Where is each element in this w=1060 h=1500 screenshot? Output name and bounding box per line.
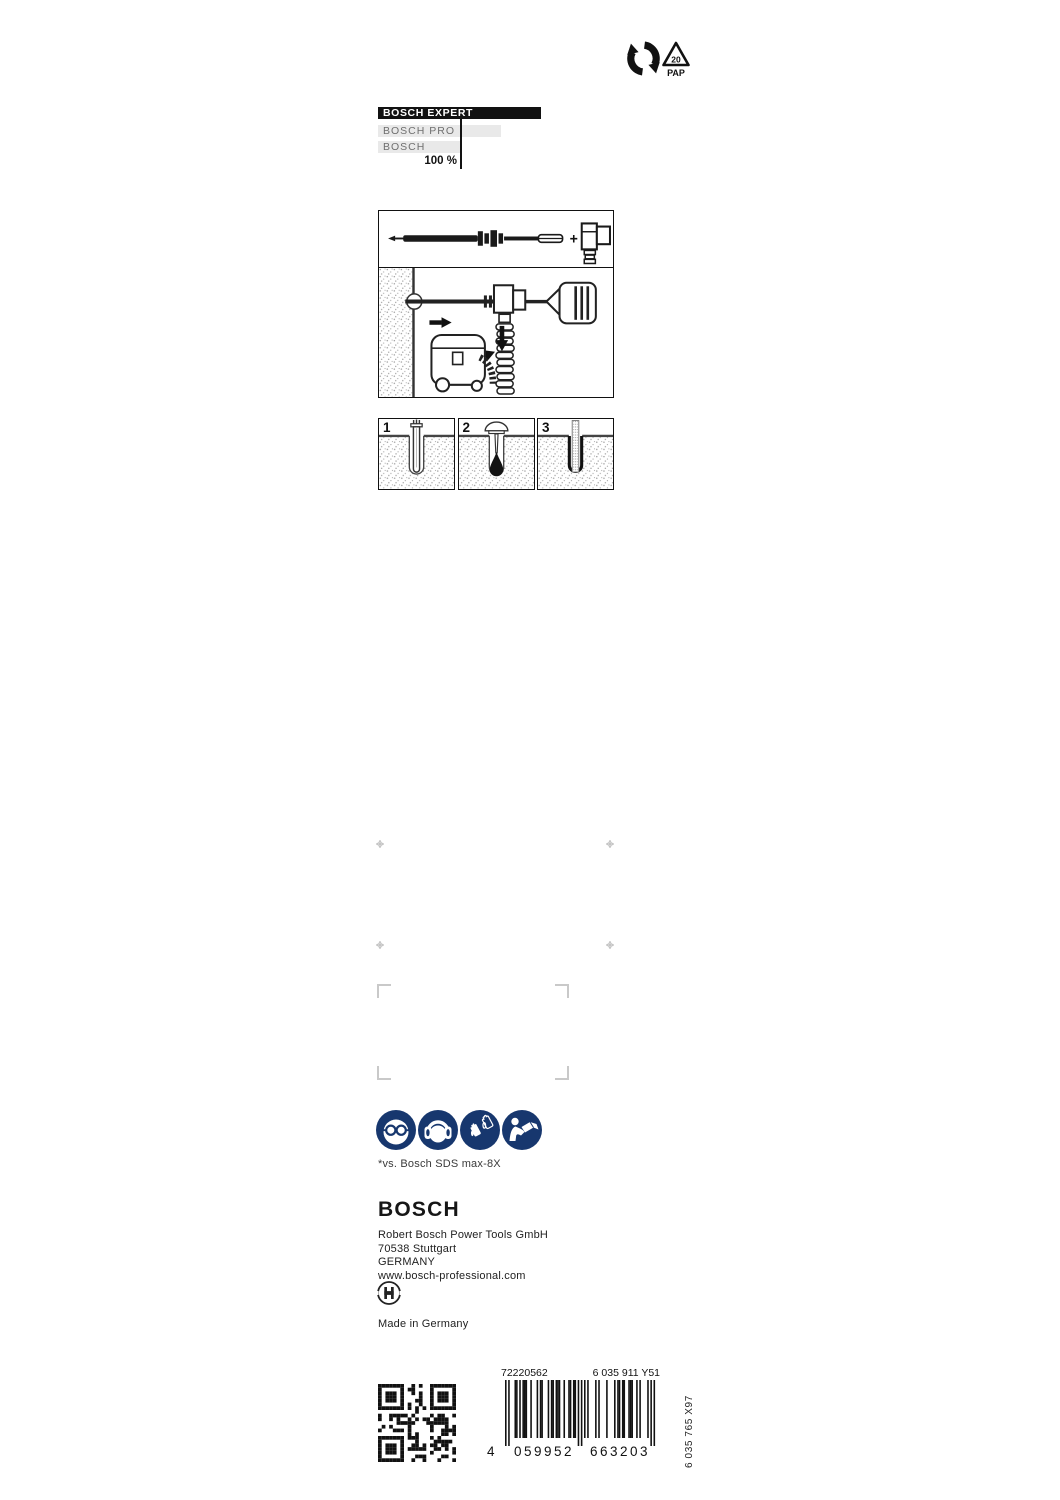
- drill-and-adapter-illustration: +: [379, 211, 613, 267]
- svg-text:PAP: PAP: [667, 68, 685, 78]
- step-number: 1: [383, 420, 391, 435]
- ean-digits-left: 059952: [514, 1444, 574, 1459]
- baseline-100-label: 100 %: [378, 155, 457, 167]
- step-panel-1: 1: [378, 418, 455, 490]
- corner-crop-mark: [555, 984, 569, 998]
- manufacturer-website: www.bosch-professional.com: [378, 1270, 548, 1284]
- packaging-back-panel: 20 PAP BOSCH EXPERT BOSCH PRO BOSCH 100 …: [0, 0, 1060, 1500]
- assembly-diagram: +: [378, 210, 614, 268]
- registration-mark: [606, 840, 614, 848]
- registration-mark: [376, 840, 384, 848]
- step-panel-3: 3: [537, 418, 614, 490]
- type-code: 6 035 911 Y51: [556, 1367, 660, 1379]
- baseline-100-line: [460, 119, 462, 169]
- wear-ear-protection-icon: [418, 1110, 458, 1150]
- bosch-logo: BOSCH: [378, 1198, 460, 1222]
- manufacturer-address: Robert Bosch Power Tools GmbH 70538 Stut…: [378, 1229, 548, 1283]
- manufacturer-country: GERMANY: [378, 1256, 548, 1270]
- side-part-number: 6 035 765 X97: [684, 1395, 695, 1468]
- ean-barcode: [504, 1380, 656, 1447]
- pap-recycling-icon: 20 PAP: [661, 40, 691, 84]
- bar-bosch-expert: BOSCH EXPERT: [378, 107, 541, 119]
- manufacturer-name: Robert Bosch Power Tools GmbH: [378, 1229, 548, 1243]
- footnote: *vs. Bosch SDS max-8X: [378, 1158, 501, 1170]
- order-number: 72220562: [501, 1367, 548, 1379]
- read-instruction-manual-icon: [502, 1110, 542, 1150]
- ean-digits-right: 663203: [590, 1444, 650, 1459]
- registration-mark: [376, 941, 384, 949]
- svg-text:+: +: [570, 232, 578, 248]
- step-panel-2: 2: [458, 418, 535, 490]
- corner-crop-mark: [377, 984, 391, 998]
- registration-mark: [606, 941, 614, 949]
- step-number: 2: [463, 420, 471, 435]
- green-dot-icon: [626, 41, 661, 76]
- manufacturer-city: 70538 Stuttgart: [378, 1243, 548, 1257]
- usage-diagram: [378, 267, 614, 398]
- step-panels: 1 2: [378, 418, 614, 490]
- wear-protective-gloves-icon: [460, 1110, 500, 1150]
- bosch-emblem-icon: [376, 1280, 402, 1306]
- made-in-germany: Made in Germany: [378, 1318, 468, 1330]
- bar-bosch-pro: BOSCH PRO: [378, 125, 501, 137]
- brand-comparison-chart: BOSCH EXPERT BOSCH PRO BOSCH 100 %: [378, 107, 553, 171]
- corner-crop-mark: [555, 1066, 569, 1080]
- corner-crop-mark: [377, 1066, 391, 1080]
- qr-code: [378, 1384, 456, 1462]
- wear-eye-protection-icon: [376, 1110, 416, 1150]
- step-number: 3: [542, 420, 550, 435]
- dust-extraction-setup-illustration: [379, 268, 613, 397]
- bar-bosch: BOSCH: [378, 141, 460, 153]
- svg-text:20: 20: [671, 55, 681, 65]
- ean-digit-lead: 4: [487, 1444, 497, 1459]
